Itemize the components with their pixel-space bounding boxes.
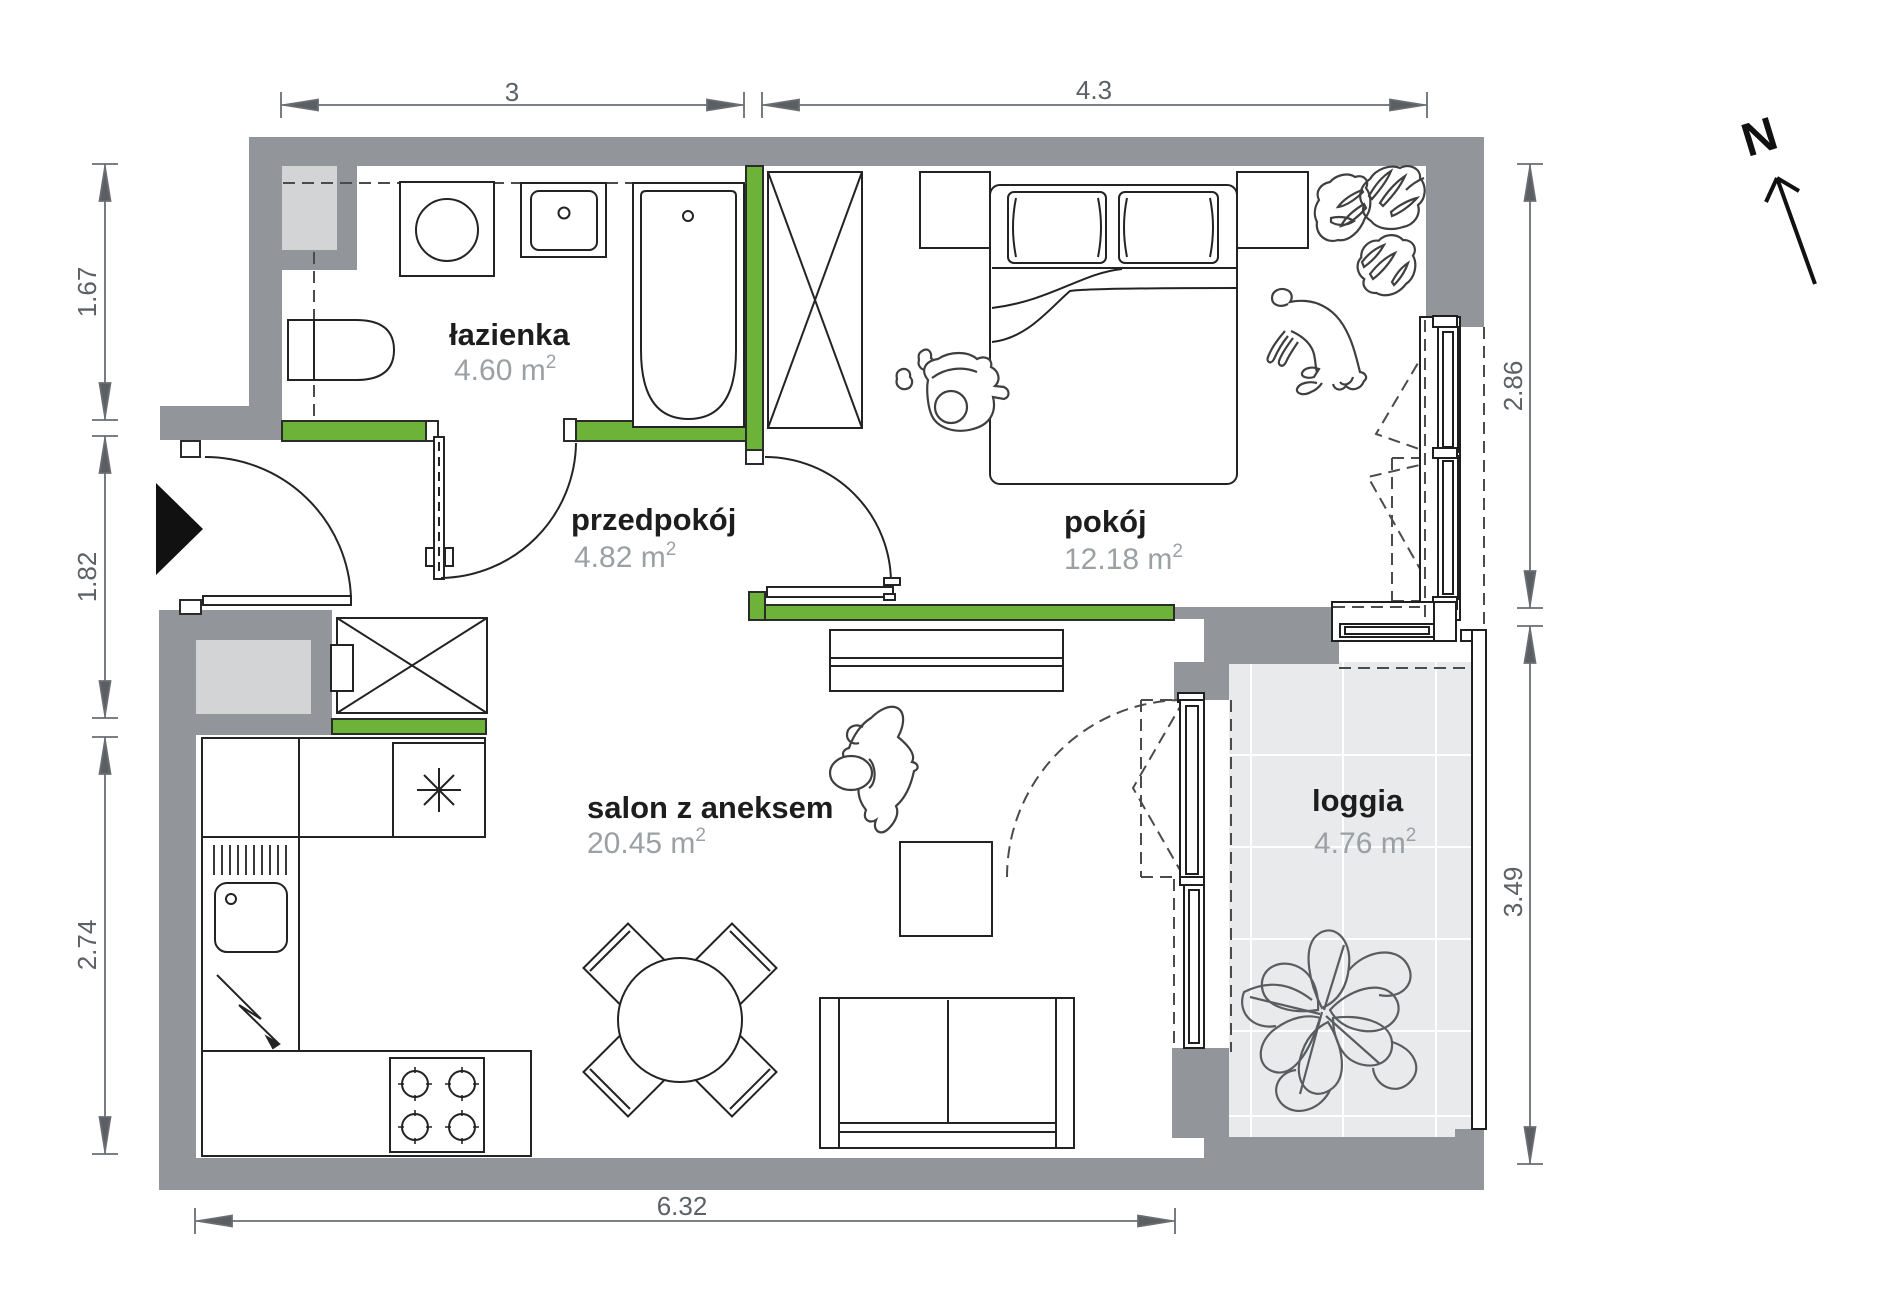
svg-text:4.82 m2: 4.82 m2 — [574, 539, 676, 574]
svg-text:2.74: 2.74 — [72, 920, 102, 971]
svg-text:12.18 m2: 12.18 m2 — [1064, 541, 1183, 576]
svg-text:2.86: 2.86 — [1498, 361, 1528, 412]
svg-text:4.76 m2: 4.76 m2 — [1314, 825, 1416, 860]
svg-text:salon z aneksem: salon z aneksem — [587, 790, 833, 825]
svg-text:20.45 m2: 20.45 m2 — [587, 825, 706, 860]
svg-text:3: 3 — [505, 77, 519, 107]
svg-text:1.82: 1.82 — [72, 552, 102, 603]
svg-text:6.32: 6.32 — [657, 1191, 708, 1221]
svg-text:łazienka: łazienka — [449, 317, 570, 352]
svg-text:przedpokój: przedpokój — [571, 502, 736, 537]
svg-text:loggia: loggia — [1312, 783, 1404, 818]
svg-text:4.60 m2: 4.60 m2 — [454, 352, 556, 387]
svg-text:1.67: 1.67 — [72, 267, 102, 318]
svg-text:4.3: 4.3 — [1076, 75, 1112, 105]
svg-text:pokój: pokój — [1064, 504, 1147, 539]
svg-text:3.49: 3.49 — [1498, 867, 1528, 918]
